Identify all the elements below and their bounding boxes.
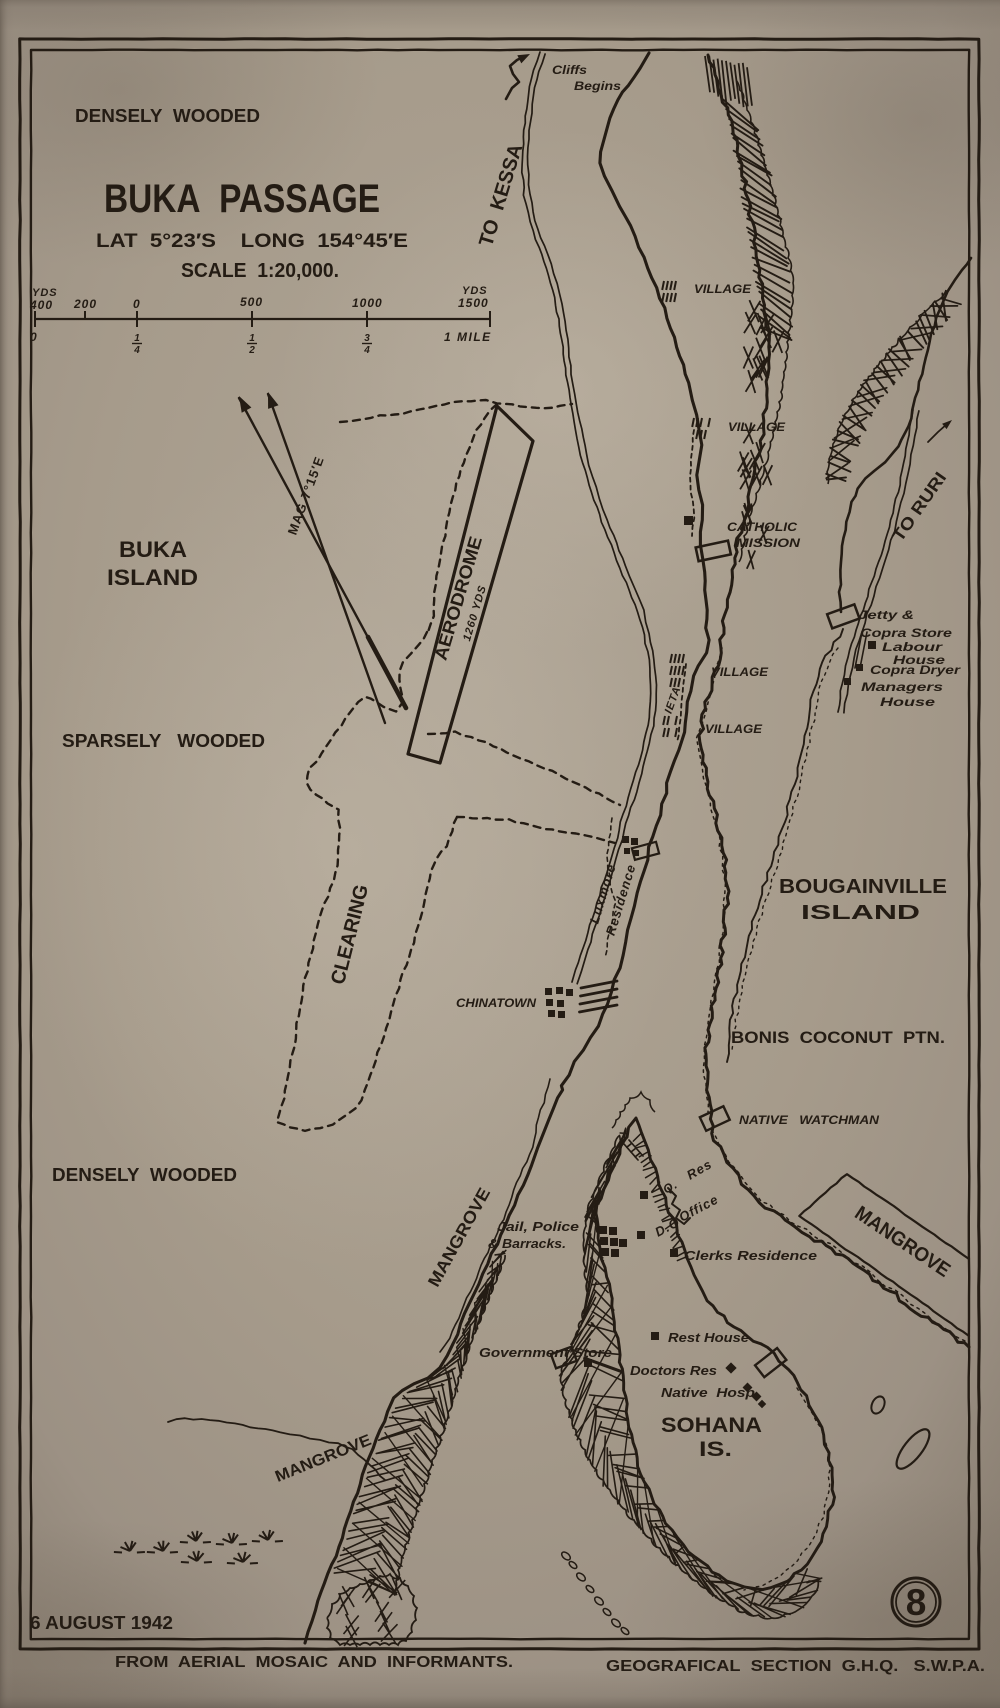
svg-text:ISLAND: ISLAND [107,565,198,590]
svg-text:DENSELY WOODED: DENSELY WOODED [52,1165,237,1185]
svg-text:& Barracks.: & Barracks. [488,1236,566,1251]
svg-text:400: 400 [29,298,53,312]
svg-text:Managers: Managers [861,680,943,694]
svg-text:4: 4 [363,345,370,356]
svg-text:6 AUGUST 1942: 6 AUGUST 1942 [30,1613,173,1633]
svg-text:1: 1 [249,333,255,344]
svg-text:1: 1 [134,333,140,344]
svg-text:Jetty &: Jetty & [858,608,914,622]
svg-text:SOHANA: SOHANA [661,1414,762,1437]
svg-text:Begins: Begins [574,79,621,93]
svg-text:200: 200 [73,297,97,311]
svg-text:1 MILE: 1 MILE [444,330,492,344]
svg-text:VILLAGE: VILLAGE [694,284,751,296]
svg-text:BOUGAINVILLE: BOUGAINVILLE [779,876,947,898]
svg-text:FROM AERIAL MOSAIC AND INF: FROM AERIAL MOSAIC AND INFORMANTS. [115,1654,513,1671]
svg-text:VILLAGE: VILLAGE [728,422,785,434]
svg-text:2: 2 [248,345,255,356]
svg-text:Copra Dryer: Copra Dryer [870,663,962,677]
svg-text:Native Hosp: Native Hosp [661,1385,755,1400]
svg-text:0: 0 [133,297,141,311]
svg-text:GEOGRAFICAL SECTION G.H.Q.: GEOGRAFICAL SECTION G.H.Q. S.W.P.A. [606,1658,985,1675]
svg-text:BONIS COCONUT PTN.: BONIS COCONUT PTN. [731,1028,945,1047]
svg-text:Copra Store: Copra Store [860,626,952,640]
svg-text:ISLAND: ISLAND [801,902,920,924]
svg-text:NATIVE WATCHMAN: NATIVE WATCHMAN [739,1113,879,1127]
svg-text:LAT 5°23′S LONG 154°45′E: LAT 5°23′S LONG 154°45′E [96,231,408,252]
svg-text:8: 8 [906,1582,927,1623]
svg-text:BUKA PASSAGE: BUKA PASSAGE [104,177,380,221]
svg-text:0: 0 [30,330,38,344]
svg-text:VILLAGE: VILLAGE [705,724,762,736]
svg-text:MISSION: MISSION [736,536,800,550]
svg-text:500: 500 [240,295,263,309]
svg-text:Cliffs: Cliffs [552,63,587,77]
svg-text:1000: 1000 [352,296,383,310]
svg-text:4: 4 [133,345,140,356]
svg-text:BUKA: BUKA [119,537,187,562]
svg-text:CHINATOWN: CHINATOWN [456,996,536,1010]
svg-text:Clerks Residence: Clerks Residence [684,1248,817,1263]
svg-text:Jail, Police: Jail, Police [497,1219,579,1234]
svg-text:Government Store: Government Store [479,1345,612,1360]
svg-text:1500: 1500 [458,296,489,310]
svg-text:DENSELY WOODED: DENSELY WOODED [75,106,260,126]
svg-text:House: House [880,695,935,709]
svg-text:SPARSELY WOODED: SPARSELY WOODED [62,731,265,751]
svg-text:Labour: Labour [882,640,944,654]
svg-text:Rest House: Rest House [668,1330,749,1345]
svg-text:SCALE 1:20,000.: SCALE 1:20,000. [181,260,339,282]
svg-text:CATHOLIC: CATHOLIC [727,520,797,534]
svg-text:3: 3 [364,333,370,344]
svg-text:VILLAGE: VILLAGE [711,667,768,679]
svg-text:IS.: IS. [699,1438,732,1461]
svg-text:Doctors Res: Doctors Res [630,1363,717,1378]
